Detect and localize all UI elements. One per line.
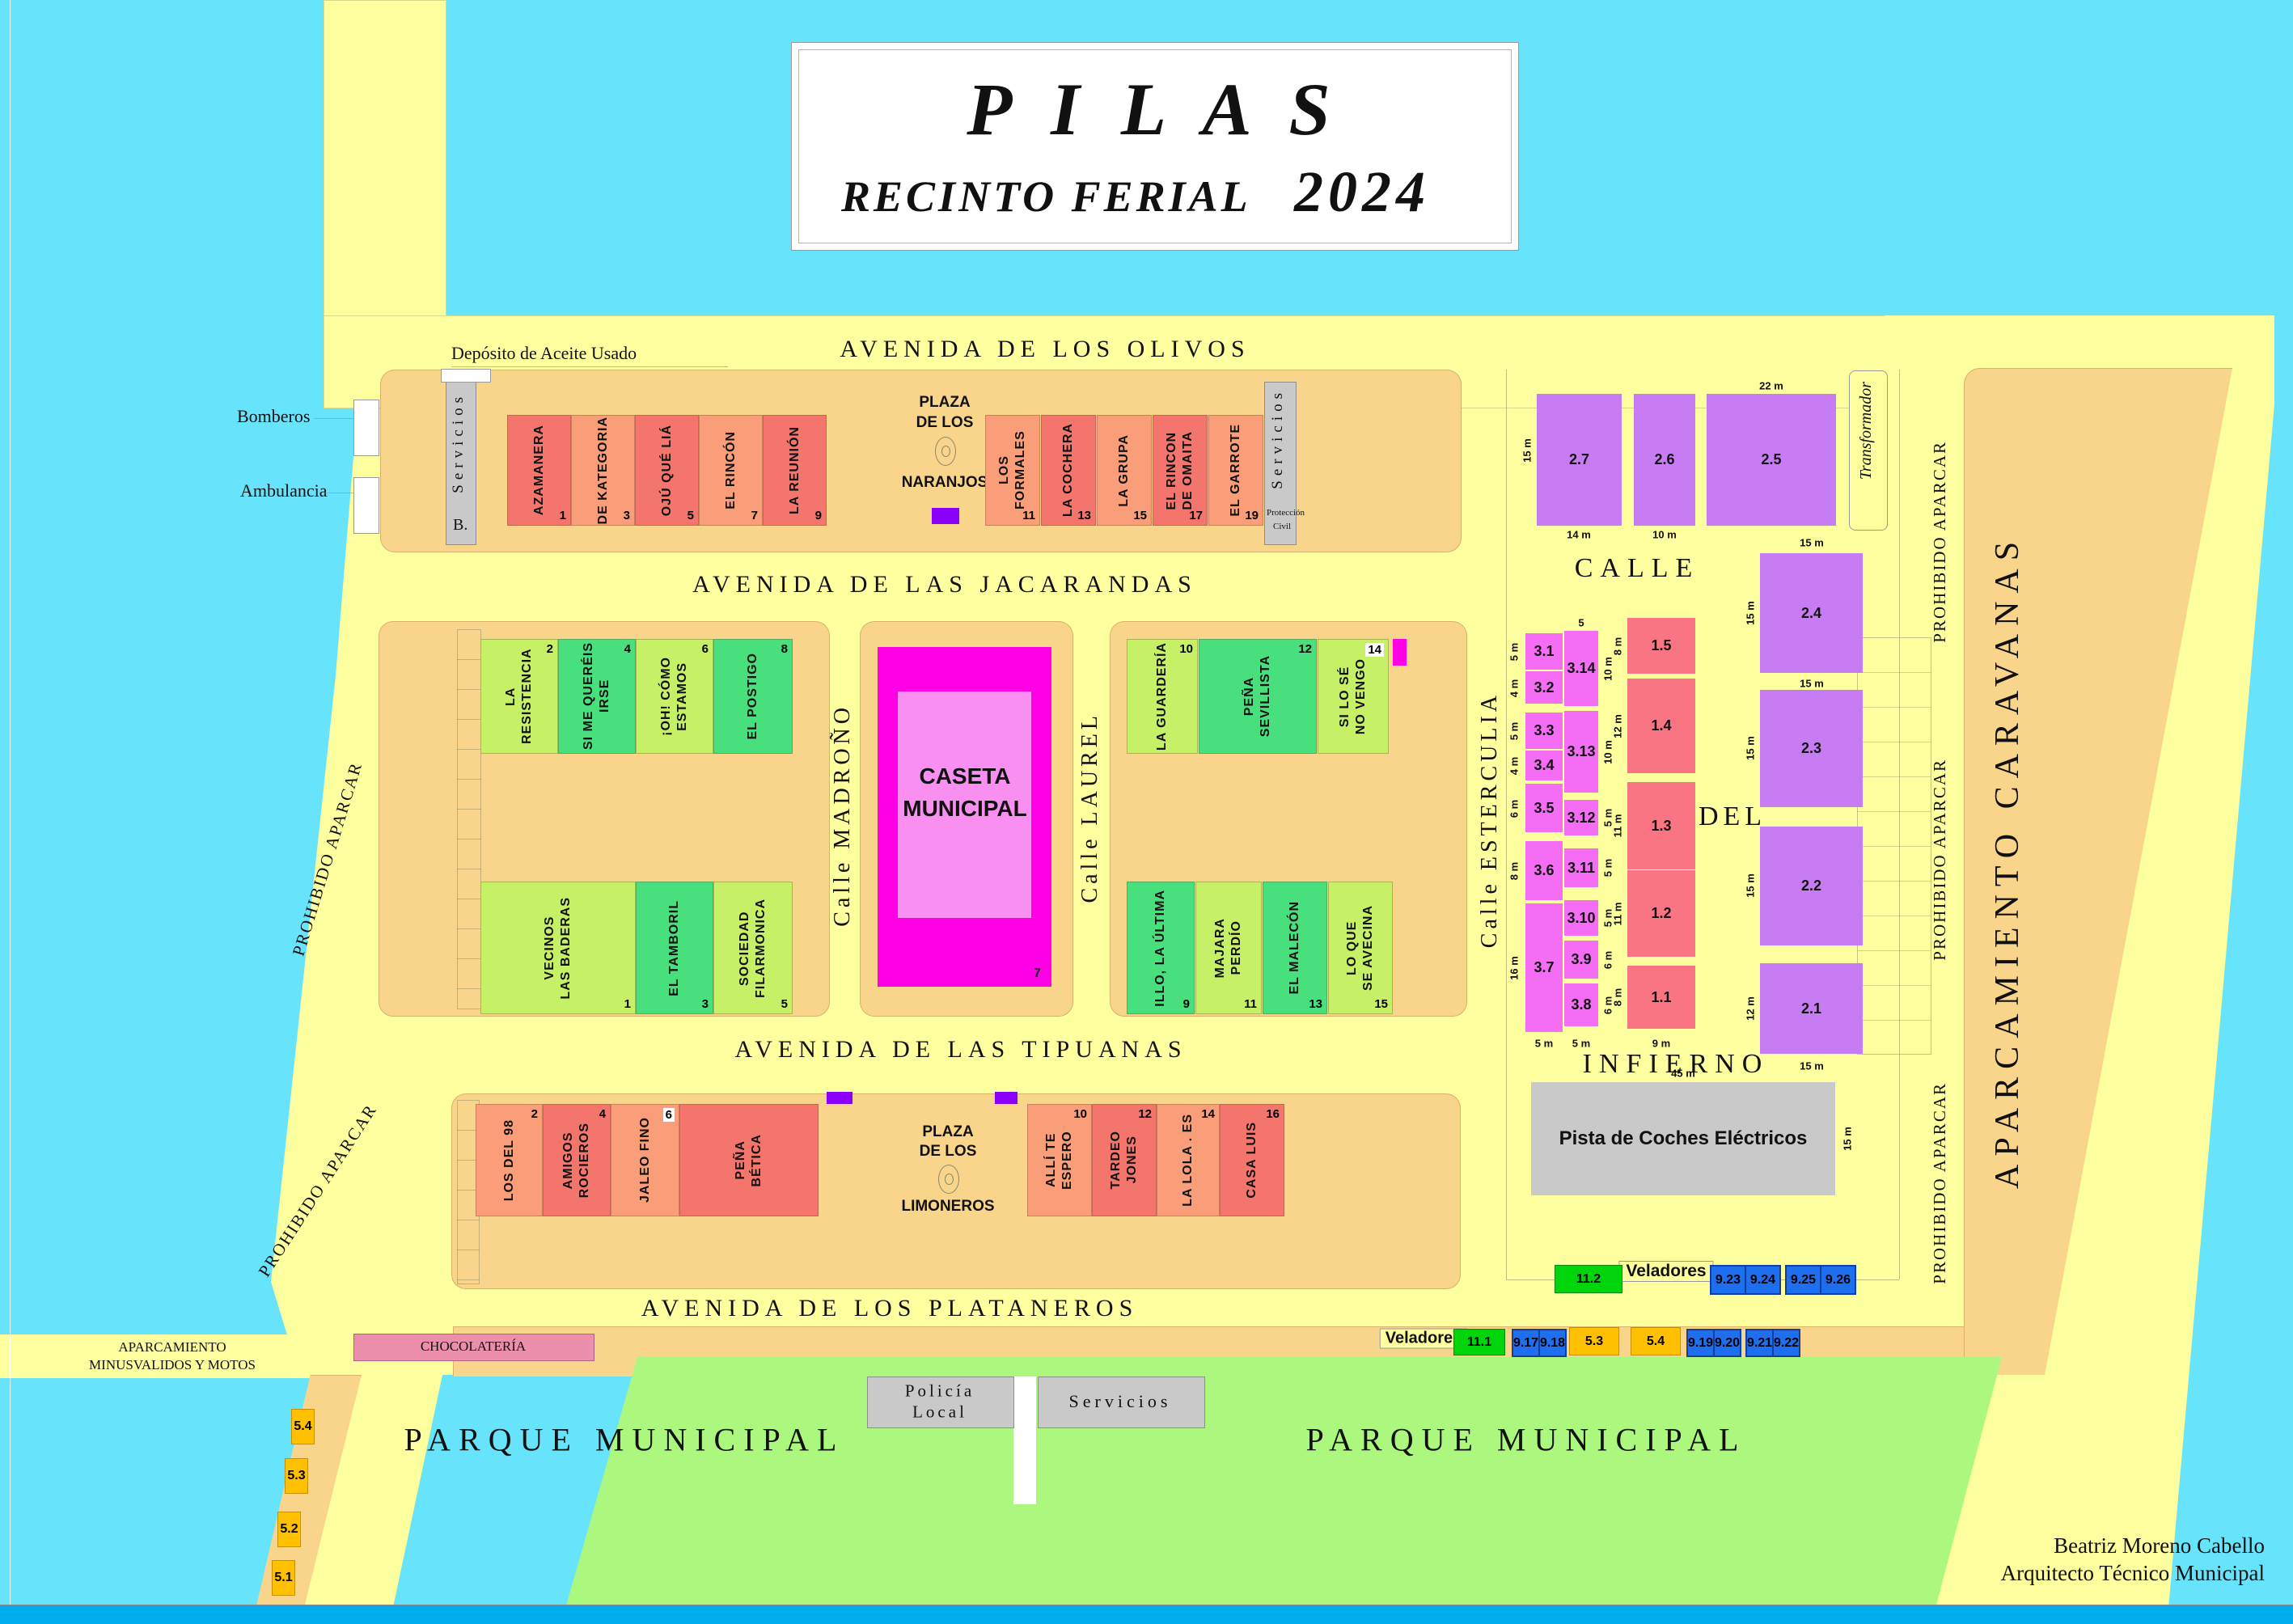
measure-label: 45 m	[1671, 1068, 1695, 1080]
caseta-number: 5	[781, 998, 788, 1010]
velador-9.17: 9.17	[1512, 1329, 1540, 1357]
caseta-number: 19	[1245, 510, 1259, 522]
bomberos-box	[353, 400, 379, 456]
caseta-number: 7	[751, 510, 758, 522]
proteccion-civil-1: Protección	[1267, 508, 1305, 518]
avenida-tipuanas: AVENIDA DE LAS TIPUANAS	[734, 1036, 1187, 1064]
caseta-name: CASA LUIS	[1244, 1122, 1260, 1199]
velador-9.20: 9.20	[1713, 1329, 1741, 1357]
caseta-9: LA REUNIÓN9	[763, 415, 827, 526]
plaza-naranjos-1: PLAZA	[919, 394, 970, 412]
caseta-name: AMIGOSROCIEROS	[561, 1123, 593, 1198]
caseta-number: 13	[1077, 510, 1091, 522]
measure-label: 6 m	[1602, 951, 1614, 969]
ambulancia-box	[353, 477, 379, 534]
title-subtitle: RECINTO FERIAL	[841, 171, 1251, 222]
title-year: 2024	[1294, 159, 1430, 226]
velador-9.22: 9.22	[1772, 1329, 1800, 1357]
caseta-number: 5	[687, 510, 694, 522]
proteccion-civil-2: Civil	[1273, 522, 1291, 531]
stall-2.7: 2.7	[1537, 394, 1622, 526]
prohibido-right-1: PROHIBIDO APARCAR	[1930, 441, 1950, 643]
velador-5.2: 5.2	[277, 1512, 301, 1547]
caseta-4: AMIGOSROCIEROS4	[543, 1104, 611, 1216]
measure-label: 8 m	[1612, 637, 1624, 655]
servicios-left-label: Servicios	[450, 392, 467, 493]
veladores-label-1: Veladores	[1618, 1261, 1713, 1282]
caseta-name: LO QUESE AVECINA	[1344, 905, 1377, 991]
caseta-name: LA GUARDERÍA	[1154, 642, 1170, 751]
stall-3.9: 3.9	[1564, 941, 1598, 979]
stall-2.4: 2.4	[1760, 553, 1863, 673]
caseta-name: ILLO, LA ÚLTIMA	[1153, 890, 1169, 1007]
measure-label: 9 m	[1652, 1038, 1670, 1050]
plaza-limoneros-1: PLAZA	[922, 1123, 973, 1141]
caseta-name: LOS DEL 98	[501, 1119, 518, 1201]
measure-label: 15 m	[1745, 873, 1757, 898]
stall-2.5: 2.5	[1707, 394, 1836, 526]
caseta-number: 4	[599, 1108, 606, 1120]
left-border-line	[10, 0, 11, 1605]
caseta-5: SOCIEDADFILARMONICA5	[713, 882, 793, 1014]
parking-grid-left	[457, 629, 481, 1009]
caseta-14: SI LO SÉNO VENGO14	[1318, 639, 1389, 754]
caseta-name: SOCIEDADFILARMONICA	[737, 899, 769, 998]
bottom-strip	[0, 1605, 2293, 1624]
measure-label: 5 m	[1508, 643, 1521, 661]
caseta-number: 3	[702, 998, 709, 1010]
measure-label: 15 m	[1800, 537, 1824, 549]
minusvalidos-l2: MINUSVALIDOS Y MOTOS	[89, 1357, 256, 1373]
stall-1.5: 1.5	[1627, 618, 1695, 674]
measure-label: 10 m	[1602, 657, 1614, 681]
stall-3.2: 3.2	[1525, 671, 1563, 704]
plaza-marker	[827, 1092, 852, 1104]
caseta-name: ¡OH! CÓMOESTAMOS	[658, 657, 691, 736]
measure-label: 15 m	[1800, 678, 1824, 690]
caseta-12: TARDEOJONES12	[1092, 1104, 1157, 1216]
bomberos-label: Bomberos	[237, 406, 310, 427]
caseta-number: 8	[781, 643, 788, 655]
caseta-3: EL TAMBORIL3	[636, 882, 713, 1014]
caseta-8: EL POSTIGO8	[713, 639, 793, 754]
caseta-number: 4	[624, 643, 631, 655]
stall-3.5: 3.5	[1525, 784, 1563, 832]
velador-5.1: 5.1	[272, 1560, 295, 1596]
velador-5.3: 5.3	[285, 1458, 308, 1494]
caseta-name: DE KATEGORIA	[595, 417, 611, 524]
measure-label: 11 m	[1612, 903, 1624, 926]
velador-11.1: 11.1	[1453, 1329, 1505, 1355]
servicios-left-b: B.	[453, 516, 467, 535]
measure-label: 5 m	[1535, 1038, 1553, 1050]
caseta-name: PEÑASEVILLISTA	[1242, 655, 1274, 737]
caseta-number: 11	[1022, 510, 1035, 522]
caseta-5: OJÚ QUÉ LIÁ5	[635, 415, 699, 526]
measure-label: 5	[1578, 617, 1584, 629]
velador-9.26: 9.26	[1820, 1265, 1856, 1295]
caseta-11: MAJARAPERDÍO11	[1195, 882, 1262, 1014]
stall-3.14: 3.14	[1564, 631, 1598, 706]
avenida-jacarandas: AVENIDA DE LAS JACARANDAS	[692, 571, 1197, 598]
caseta-name: LA COCHERA	[1060, 423, 1077, 517]
stall-1.1: 1.1	[1627, 966, 1695, 1029]
prohibido-right-3: PROHIBIDO APARCAR	[1930, 1082, 1950, 1284]
caseta-number: 6	[702, 643, 709, 655]
plaza-naranjos-2: DE LOS	[916, 414, 974, 432]
velador-9.23: 9.23	[1710, 1265, 1746, 1295]
stall-3.8: 3.8	[1564, 983, 1598, 1026]
measure-label: 12 m	[1612, 714, 1624, 738]
bomberos-line	[314, 418, 353, 419]
caseta-1: VECINOSLAS BADERAS1	[480, 882, 636, 1014]
measure-label: 15 m	[1745, 736, 1757, 760]
measure-label: 4 m	[1508, 757, 1521, 775]
deposito-line	[451, 366, 728, 367]
prohibido-right-2: PROHIBIDO APARCAR	[1930, 759, 1950, 961]
measure-label: 5 m	[1602, 859, 1614, 877]
stall-3.11: 3.11	[1564, 848, 1598, 887]
stall-3.4: 3.4	[1525, 751, 1563, 780]
caseta-name: ALLÍ TE ESPERO	[1043, 1105, 1076, 1216]
stall-2.1: 2.1	[1760, 963, 1863, 1054]
caseta-13: LA COCHERA13	[1041, 415, 1096, 526]
stall-2.2: 2.2	[1760, 827, 1863, 945]
caseta-4: SI ME QUERÉISIRSE4	[558, 639, 636, 754]
caseta-10: ALLÍ TE ESPERO10	[1027, 1104, 1092, 1216]
caseta-11: LOS FORMALES11	[985, 415, 1040, 526]
caseta-number: 10	[1179, 643, 1193, 655]
measure-label: 10 m	[1652, 529, 1677, 541]
caseta-16: CASA LUIS16	[1220, 1104, 1284, 1216]
caseta-name: JALEO FINO	[637, 1117, 654, 1203]
stall-3.1: 3.1	[1525, 633, 1563, 670]
caseta-number: 6	[663, 1108, 675, 1122]
measure-label: 10 m	[1602, 740, 1614, 764]
recinto-ferial-map: Servicios B. Servicios Protección Civil …	[0, 0, 2293, 1624]
stall-1.4: 1.4	[1627, 679, 1695, 773]
velador-9.21: 9.21	[1745, 1329, 1774, 1357]
caseta-municipal-l2: MUNICIPAL	[903, 796, 1026, 822]
parque-label-2: PARQUE MUNICIPAL	[1306, 1421, 1747, 1459]
caseta-name: TARDEOJONES	[1108, 1131, 1140, 1189]
measure-label: 11 m	[1612, 814, 1624, 838]
velador-11.2: 11.2	[1555, 1265, 1622, 1293]
infierno-calle: CALLE	[1575, 553, 1700, 584]
measure-label: 15 m	[1800, 1060, 1824, 1072]
caseta-number: 16	[1266, 1108, 1280, 1120]
caseta-municipal-l1: CASETA	[919, 763, 1010, 789]
minusvalidos-l1: APARCAMIENTO	[118, 1339, 226, 1355]
caseta-1: AZAMANERA1	[507, 415, 571, 526]
caseta-15: LO QUESE AVECINA15	[1328, 882, 1393, 1014]
deposito-box	[441, 369, 491, 383]
velador-5.4: 5.4	[1631, 1327, 1681, 1355]
pista-coches-label: Pista de Coches Eléctricos	[1559, 1127, 1808, 1150]
velador-5.4: 5.4	[291, 1409, 315, 1444]
stall-3.7: 3.7	[1525, 903, 1563, 1032]
chocolateria-label: CHOCOLATERÍA	[421, 1339, 526, 1355]
stall-2.6: 2.6	[1634, 394, 1695, 526]
ambulancia-line	[324, 493, 353, 493]
policia-l2: Local	[912, 1402, 967, 1423]
caseta-6: ¡OH! CÓMOESTAMOS6	[636, 639, 713, 754]
caseta-number: 1	[624, 998, 631, 1010]
caseta-6: JALEO FINO6	[611, 1104, 679, 1216]
caseta-name: LA LOLA . ES	[1180, 1114, 1196, 1207]
measure-label: 5 m	[1572, 1038, 1590, 1050]
caseta-number: 9	[815, 510, 822, 522]
building-outline	[1857, 637, 1931, 1055]
plaza-marker	[932, 508, 959, 524]
caseta-number: 17	[1189, 510, 1203, 522]
caseta-number: 3	[624, 510, 630, 522]
velador-9.19: 9.19	[1686, 1329, 1715, 1357]
stall-3.6: 3.6	[1525, 841, 1563, 900]
measure-label: 15 m	[1842, 1127, 1854, 1151]
caseta-9: ILLO, LA ÚLTIMA9	[1127, 882, 1195, 1014]
stall-2.3: 2.3	[1760, 690, 1863, 807]
caseta-number: 9	[1183, 998, 1190, 1010]
stall-3.3: 3.3	[1525, 713, 1563, 749]
caseta-19: EL GARROTE19	[1208, 415, 1263, 526]
caseta-number: 15	[1133, 510, 1147, 522]
velador-5.3: 5.3	[1569, 1327, 1619, 1355]
measure-label: 15 m	[1745, 601, 1757, 625]
caseta-3: DE KATEGORIA3	[571, 415, 635, 526]
velador-9.18: 9.18	[1538, 1329, 1567, 1357]
caseta-10: LA GUARDERÍA10	[1127, 639, 1198, 754]
caseta-number: 12	[1138, 1108, 1152, 1120]
caseta-name: LA REUNIÓN	[787, 426, 803, 514]
caseta-number: 14	[1201, 1108, 1215, 1120]
caseta-number: 11	[1244, 998, 1257, 1010]
infierno-del: DEL	[1699, 801, 1766, 832]
credit-line2: Arquitecto Técnico Municipal	[2001, 1561, 2265, 1586]
caseta-name: LA RESISTENCIA	[503, 640, 535, 753]
caseta-14: LA LOLA . ES14	[1157, 1104, 1220, 1216]
avenida-olivos: AVENIDA DE LOS OLIVOS	[840, 336, 1250, 363]
caseta-number: 12	[1298, 643, 1312, 655]
caseta-name: EL POSTIGO	[745, 653, 761, 740]
park-path	[1013, 1377, 1036, 1504]
caseta-number: 2	[547, 643, 553, 655]
parque-label-1: PARQUE MUNICIPAL	[404, 1421, 845, 1459]
caseta-name: AZAMANERA	[531, 425, 548, 515]
caravanas-label: APARCAMIENTO CARAVANAS	[1988, 396, 2027, 1189]
velador-9.25: 9.25	[1785, 1265, 1821, 1295]
caseta-13: EL MALECÓN13	[1263, 882, 1327, 1014]
calle-esterculia: Calle ESTERCULIA	[1477, 691, 1503, 948]
caseta-name: EL TAMBORIL	[666, 900, 683, 996]
caseta-municipal-num: 7	[1034, 966, 1041, 981]
servicios-right-label: Servicios	[1269, 388, 1287, 489]
plaza-limoneros-fountain	[938, 1165, 959, 1194]
caseta-peña|bética: PEÑABÉTICA	[679, 1104, 819, 1216]
caseta-name: OJÚ QUÉ LIÁ	[659, 425, 675, 516]
caseta-name: LA GRUPA	[1116, 434, 1132, 507]
stall-3.10: 3.10	[1564, 900, 1598, 936]
credit-line1: Beatriz Moreno Cabello	[2054, 1533, 2265, 1558]
plaza-limoneros-2: DE LOS	[920, 1143, 977, 1161]
plaza-marker	[1393, 639, 1407, 666]
caseta-number: 10	[1073, 1108, 1087, 1120]
deposito-label: Depósito de Aceite Usado	[451, 343, 637, 364]
avenida-plataneros: AVENIDA DE LOS PLATANEROS	[641, 1295, 1139, 1322]
caseta-name: EL MALECÓN	[1287, 901, 1303, 994]
caseta-number: 15	[1374, 998, 1388, 1010]
caseta-number: 1	[560, 510, 566, 522]
measure-label: 4 m	[1508, 679, 1521, 697]
title-name: P I L A S	[967, 66, 1341, 152]
caseta-name: SI ME QUERÉISIRSE	[581, 642, 613, 750]
measure-label: 5 m	[1508, 722, 1521, 740]
caseta-name: SI LO SÉNO VENGO	[1337, 658, 1369, 734]
caseta-name: VECINOSLAS BADERAS	[542, 897, 574, 1000]
velador-9.24: 9.24	[1745, 1265, 1781, 1295]
caseta-number: 2	[531, 1108, 538, 1120]
caseta-15: LA GRUPA15	[1097, 415, 1152, 526]
infierno-border-right	[1899, 370, 1900, 1279]
caseta-name: EL RINCONDE OMAITA	[1164, 431, 1196, 510]
stall-3.13: 3.13	[1564, 711, 1598, 793]
plaza-marker	[995, 1092, 1017, 1104]
caseta-number: 14	[1365, 643, 1384, 657]
measure-label: 15 m	[1521, 438, 1534, 463]
calle-madrono: Calle MADROÑO	[830, 704, 856, 927]
plaza-naranjos-3: NARANJOS	[902, 474, 988, 492]
caseta-name: PEÑABÉTICA	[733, 1134, 765, 1187]
caseta-17: EL RINCONDE OMAITA17	[1153, 415, 1208, 526]
parque-municipal-area	[501, 1357, 2006, 1611]
ambulancia-label: Ambulancia	[240, 480, 328, 501]
policia-l1: Policía	[905, 1381, 975, 1402]
measure-label: 8 m	[1508, 862, 1521, 880]
caseta-7: EL RINCÓN7	[699, 415, 763, 526]
measure-label: 22 m	[1759, 380, 1783, 392]
measure-label: 6 m	[1508, 800, 1521, 818]
measure-label: 16 m	[1508, 956, 1521, 980]
caseta-2: LA RESISTENCIA2	[480, 639, 558, 754]
measure-label: 12 m	[1745, 996, 1757, 1021]
caseta-2: LOS DEL 982	[476, 1104, 543, 1216]
caseta-number: 13	[1309, 998, 1322, 1010]
measure-label: 14 m	[1567, 529, 1591, 541]
stall-1.3: 1.3	[1627, 782, 1695, 869]
caseta-name: EL GARROTE	[1228, 424, 1244, 517]
transformador-label: Transformador	[1857, 382, 1876, 480]
infierno-border-left	[1506, 370, 1507, 1279]
plaza-limoneros-3: LIMONEROS	[901, 1198, 994, 1216]
caseta-12: PEÑASEVILLISTA12	[1199, 639, 1317, 754]
plaza-naranjos-fountain	[935, 437, 956, 466]
caseta-name: EL RINCÓN	[723, 431, 739, 510]
caseta-name: MAJARAPERDÍO	[1212, 918, 1245, 978]
stall-3.12: 3.12	[1564, 800, 1598, 835]
measure-label: 8 m	[1612, 988, 1624, 1006]
calle-laurel: Calle LAUREL	[1077, 712, 1103, 903]
servicios-park-label: Servicios	[1069, 1391, 1172, 1412]
stall-1.2: 1.2	[1627, 870, 1695, 957]
